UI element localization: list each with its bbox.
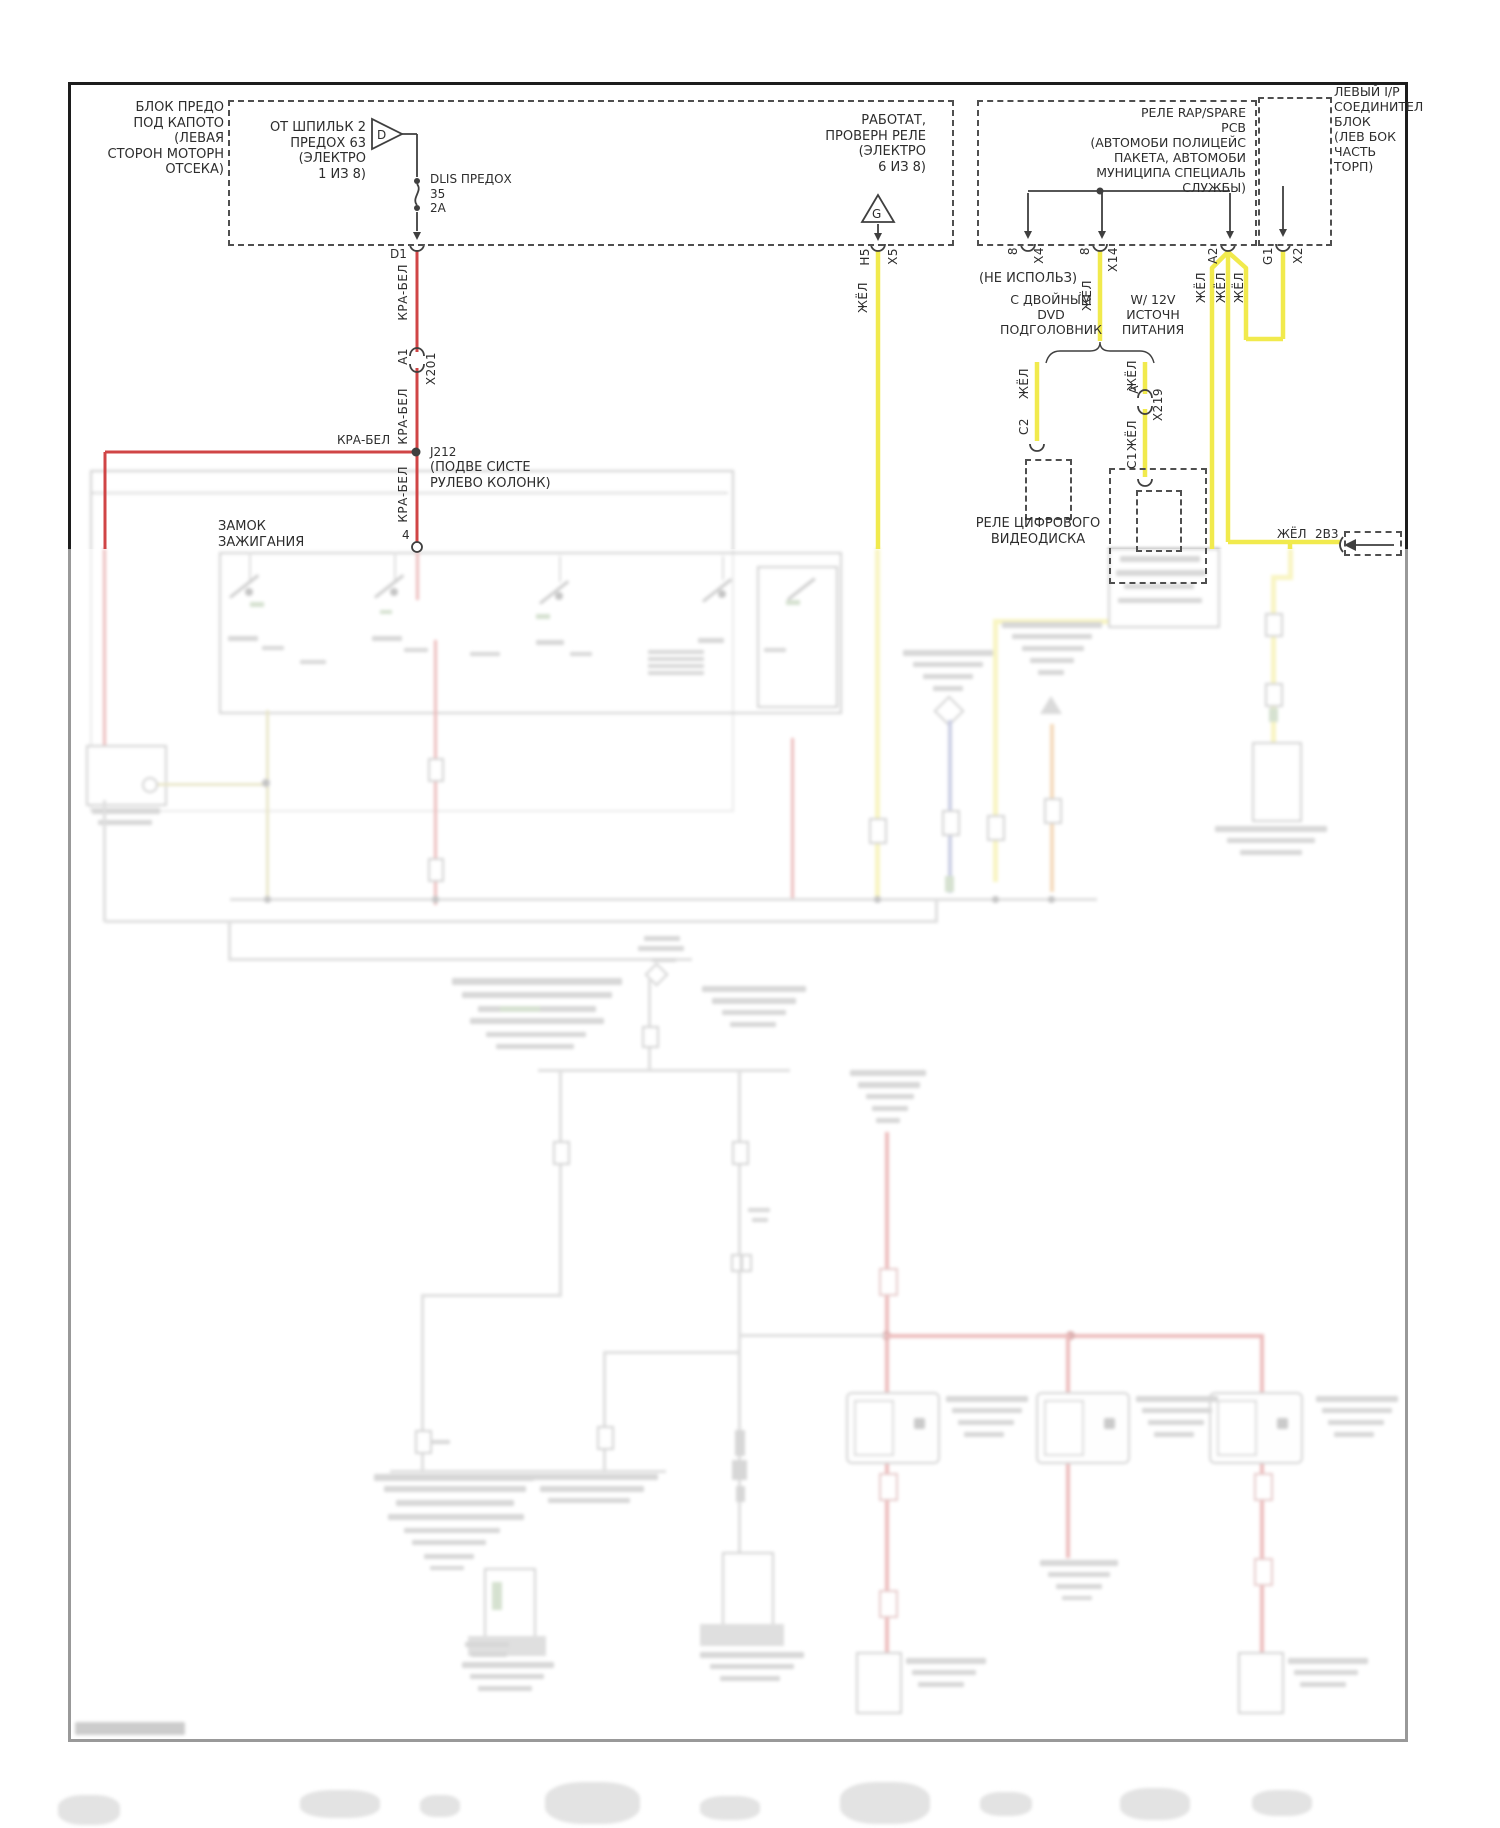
splice-x201-label: X201: [424, 352, 438, 385]
dvd-relay-box-c2: [1025, 459, 1072, 520]
pin-a2-label: A2: [1206, 247, 1220, 264]
dvd-relay-label: РЕЛЕ ЦИФРОВОГО ВИДЕОДИСКА: [956, 516, 1120, 547]
rap-box-label: РЕЛЕ RAP/SPARE РСВ (АВТОМОБИ ПОЛИЦЕЙС ПА…: [1078, 105, 1246, 195]
fuse-block-label: БЛОК ПРЕДО ПОД КАПОТО (ЛЕВАЯ СТОРОН МОТО…: [88, 100, 224, 178]
wire-label-krabel-1: КРА-БЕЛ: [396, 264, 410, 321]
splice-a1-label: A1: [396, 348, 410, 365]
red-wires: [105, 250, 417, 549]
pin-h5-label: H5: [858, 248, 872, 266]
relay-test-label: РАБОТАТ, ПРОВЕРН РЕЛЕ (ЭЛЕКТРО 6 ИЗ 8): [818, 113, 926, 175]
wire-label-zhel-a2-2: ЖЁЛ: [1214, 272, 1228, 303]
pin-4-label: 4: [402, 528, 410, 542]
ip-box-label: ЛЕВЫЙ I/P СОЕДИНИТЕЛ БЛОК (ЛЕВ БОК ЧАСТЬ…: [1334, 84, 1408, 174]
conn-x5-label: X5: [886, 248, 900, 265]
wire-label-zhel-a2-3: ЖЁЛ: [1232, 272, 1246, 303]
left-ip-junction-box: [1258, 97, 1332, 246]
edge-2b3-connector-box: [1344, 531, 1402, 556]
wire-label-krabel-h: КРА-БЕЛ: [337, 433, 390, 447]
conn-x219-label: X219: [1151, 388, 1165, 421]
junction-j212-label: J212: [430, 445, 456, 459]
pin-a-x219-label: A: [1127, 385, 1141, 394]
connector-cup-c2: [1030, 444, 1044, 451]
pin-c1-label: C1: [1125, 452, 1139, 469]
conn-x4-note: (НЕ ИСПОЛЬЗ): [968, 271, 1088, 287]
wire-label-zhel-c2: ЖЁЛ: [1017, 368, 1031, 399]
pin4-terminal: [412, 542, 422, 552]
fuse-amps-label: 2А: [430, 201, 446, 215]
pin-8-x4-label: 8: [1006, 247, 1020, 255]
fuse-feed-label: ОТ ШПИЛЬК 2 ПРЕДОХ 63 (ЭЛЕКТРО 1 ИЗ 8): [236, 120, 366, 182]
wire-label-krabel-2: КРА-БЕЛ: [396, 388, 410, 445]
j212-dot: [412, 448, 421, 457]
conn-x2-label: X2: [1291, 247, 1305, 264]
pin-c2-label: C2: [1017, 418, 1031, 435]
conn-x4-label: X4: [1032, 247, 1046, 264]
option-dvd-label: С ДВОЙНЫМ DVD ПОДГОЛОВНИК: [992, 292, 1110, 337]
edge-wire-color-label: ЖЁЛ: [1277, 527, 1307, 541]
fuse-row-label: 35: [430, 187, 445, 201]
pin-8-x14-label: 8: [1078, 247, 1092, 255]
ignition-switch-label: ЗАМОК ЗАЖИГАНИЯ: [218, 519, 328, 550]
wire-label-zhel-h5: ЖЁЛ: [856, 282, 870, 313]
wiring-diagram-page: D G БЛОК ПРЕДО ПОД КАПОТО (ЛЕВАЯ СТОРОН …: [0, 0, 1500, 1828]
wire-label-zhel-a2-1: ЖЁЛ: [1194, 272, 1208, 303]
pin-g1-label: G1: [1261, 247, 1275, 265]
option-12v-label: W/ 12V ИСТОЧН ПИТАНИЯ: [1120, 292, 1186, 337]
edge-wire-pin-label: 2В3: [1315, 527, 1339, 541]
crisp-diagram-layer: D G БЛОК ПРЕДО ПОД КАПОТО (ЛЕВАЯ СТОРОН …: [0, 0, 1500, 1828]
fuse-name-label: DLIS ПРЕДОХ: [430, 172, 512, 186]
wire-label-zhel-x219-dn: ЖЁЛ: [1125, 420, 1139, 451]
pin-d1-label: D1: [390, 247, 407, 261]
wire-label-krabel-3: КРА-БЕЛ: [396, 466, 410, 523]
dvd-relay-box-c1-inner: [1136, 490, 1182, 552]
junction-j212-desc: (ПОДВЕ СИСТЕ РУЛЕВО КОЛОНК): [430, 460, 560, 491]
wiring-svg: D G: [0, 0, 1500, 1828]
conn-x14-label: X14: [1106, 247, 1120, 272]
